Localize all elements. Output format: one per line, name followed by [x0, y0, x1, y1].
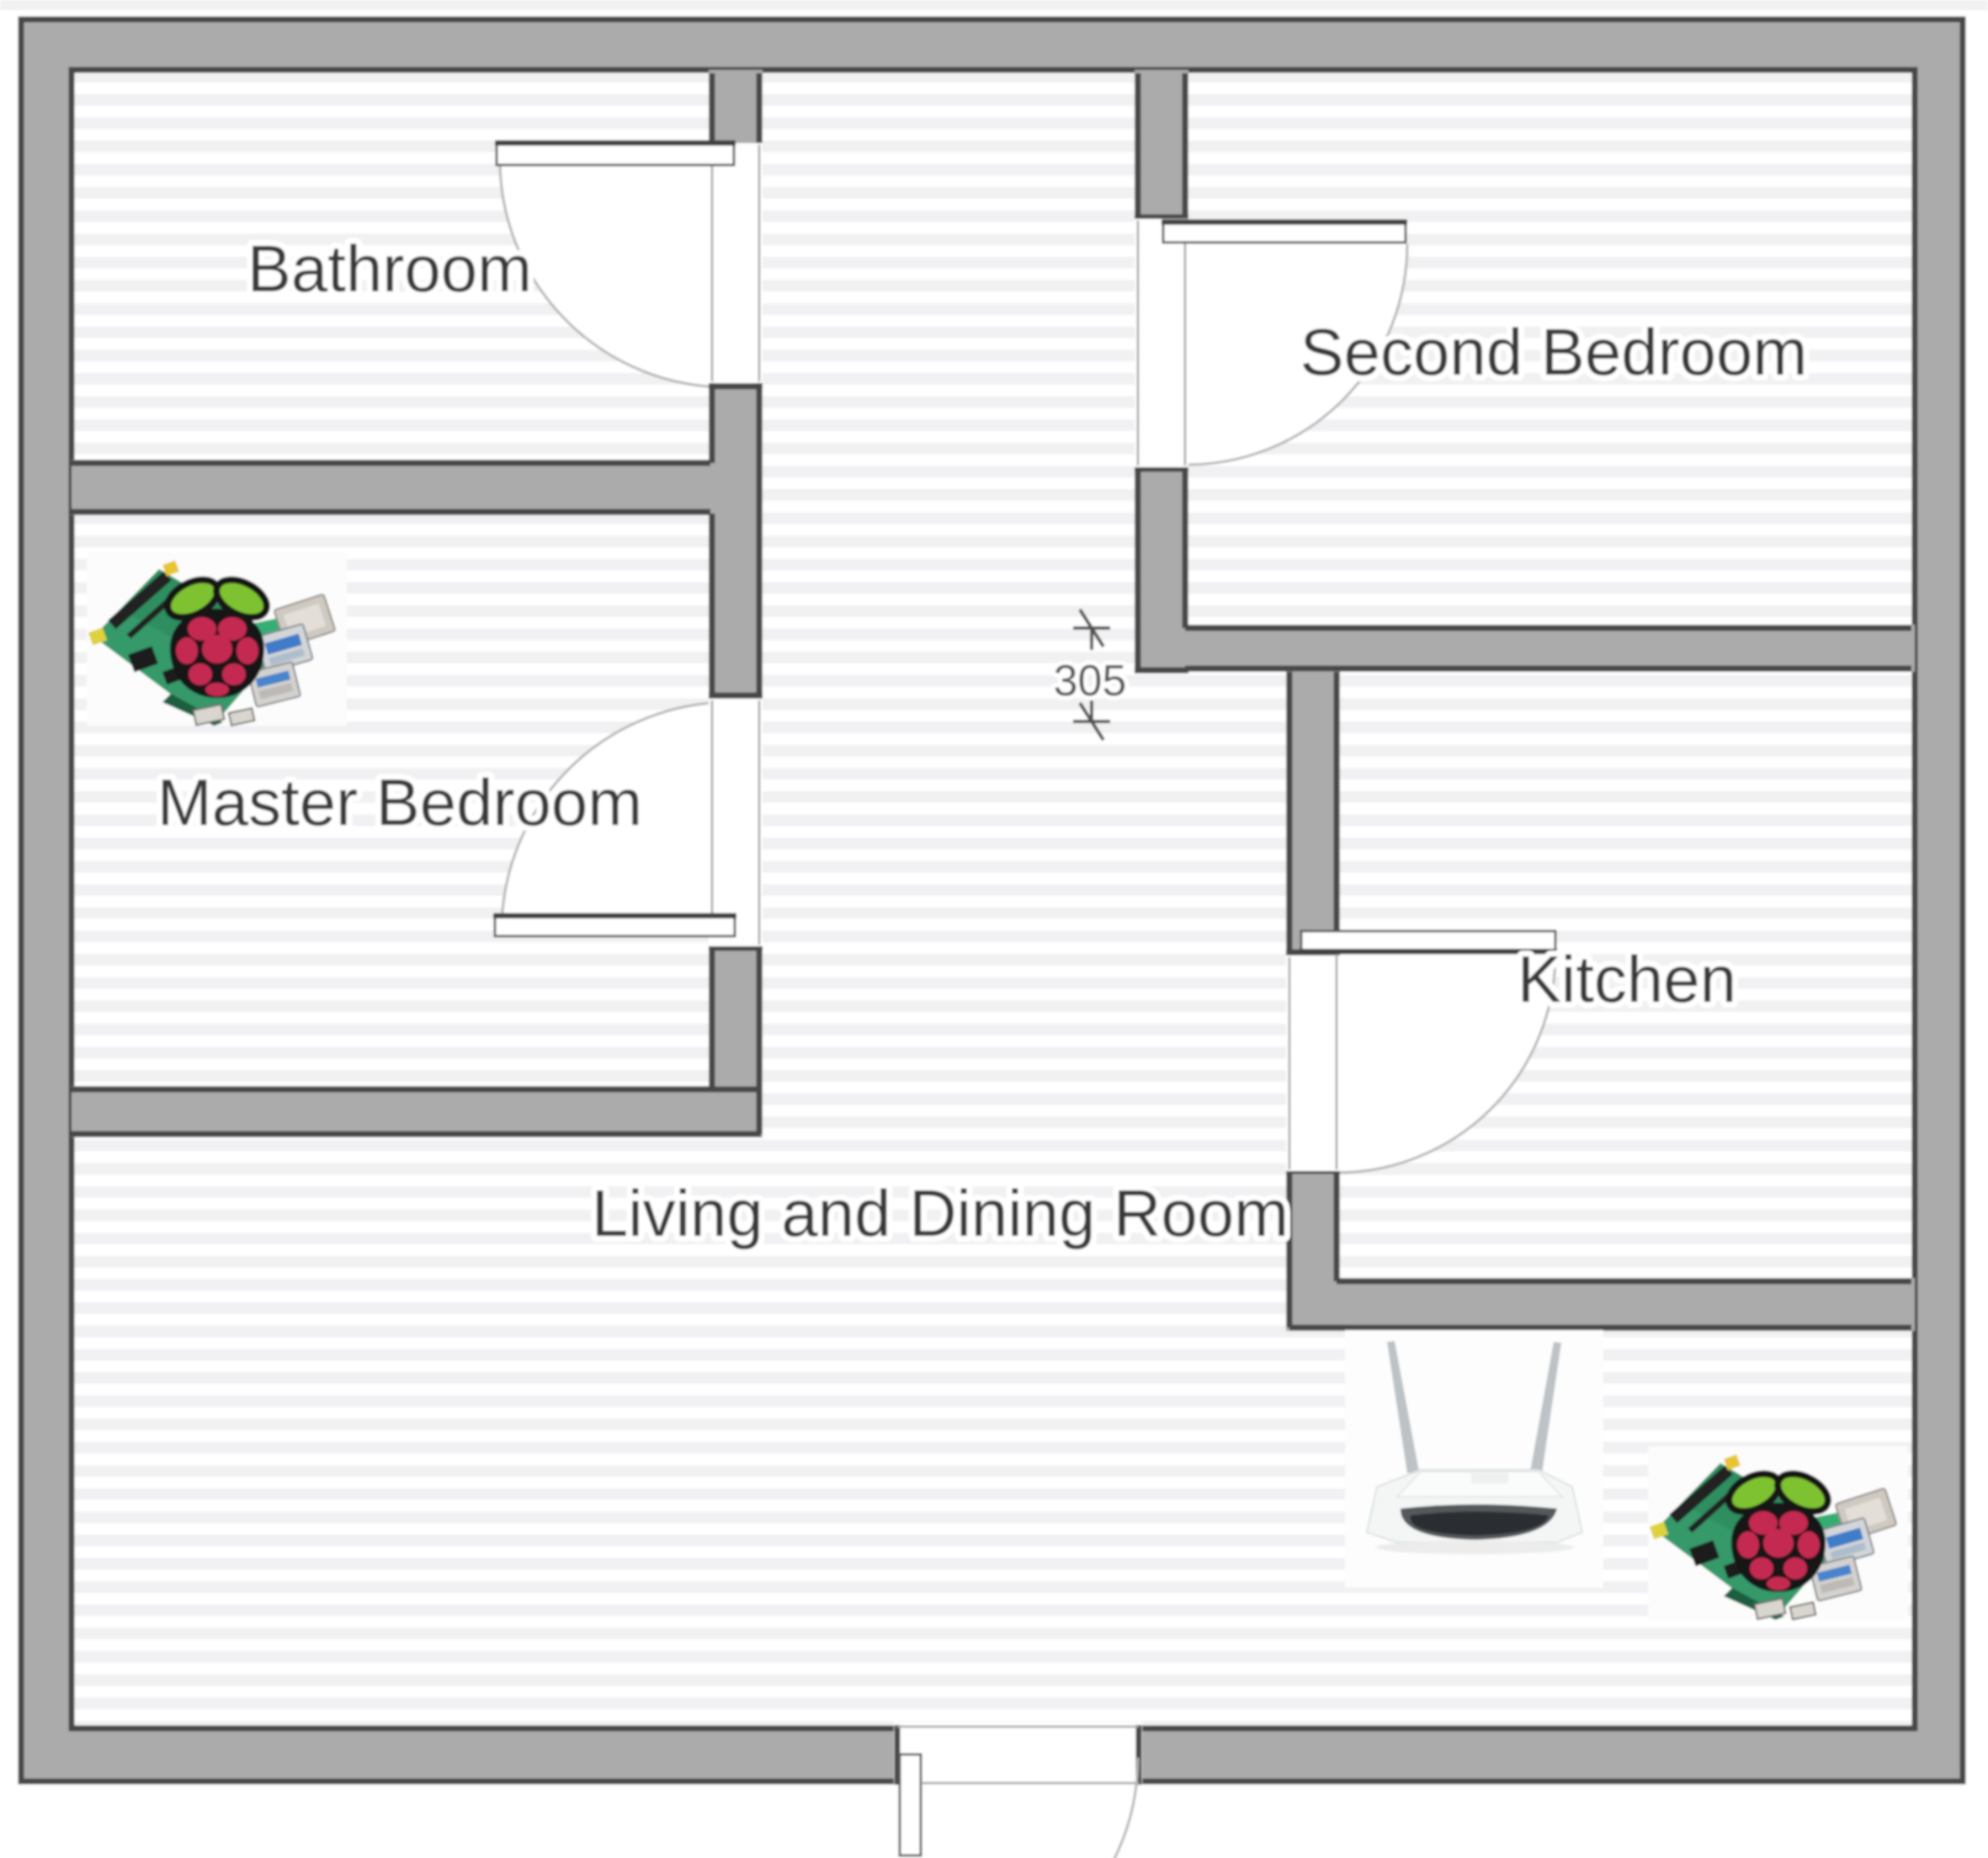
svg-text:Master Bedroom: Master Bedroom	[157, 765, 643, 839]
svg-text:Bathroom: Bathroom	[247, 232, 532, 306]
svg-text:Second Bedroom: Second Bedroom	[1300, 315, 1808, 389]
svg-text:305: 305	[1054, 657, 1127, 705]
svg-text:Living and Dining Room: Living and Dining Room	[592, 1176, 1289, 1250]
svg-text:Kitchen: Kitchen	[1518, 942, 1736, 1016]
